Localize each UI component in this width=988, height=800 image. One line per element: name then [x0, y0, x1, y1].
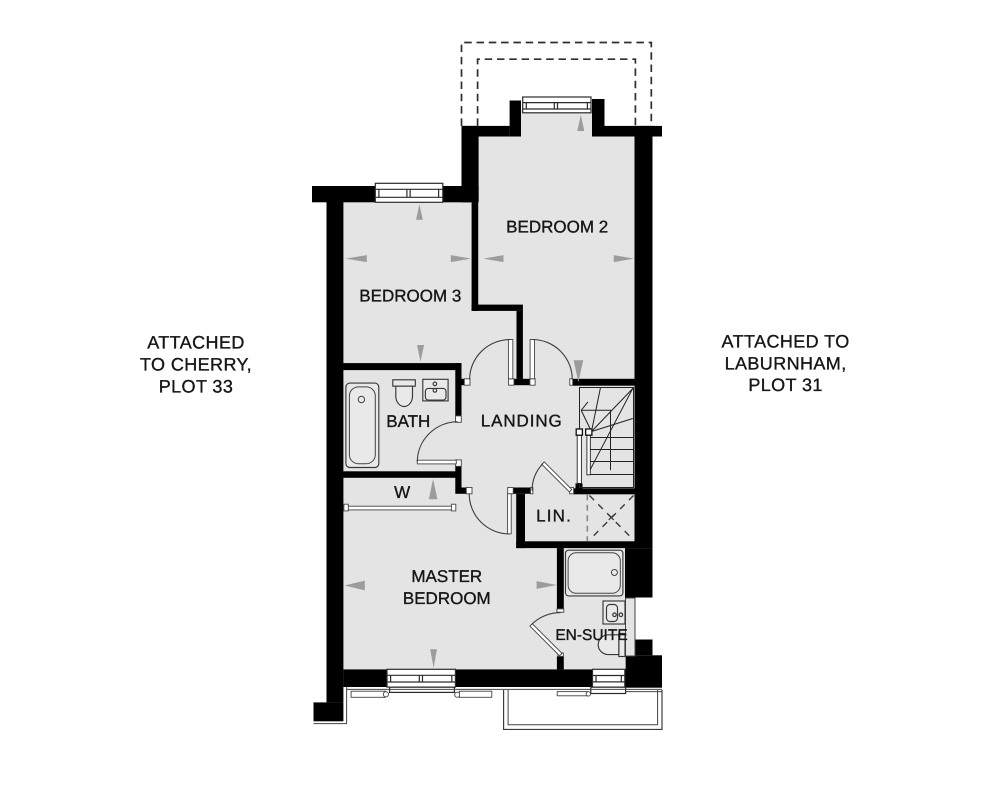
svg-text:ATTACHED TO: ATTACHED TO [722, 331, 850, 351]
svg-text:MASTER: MASTER [411, 567, 482, 586]
svg-text:PLOT 33: PLOT 33 [159, 376, 234, 396]
svg-text:PLOT 31: PLOT 31 [748, 375, 823, 395]
svg-text:EN-SUITE: EN-SUITE [555, 627, 627, 644]
svg-text:BEDROOM: BEDROOM [403, 589, 491, 608]
svg-text:BATH: BATH [386, 412, 430, 431]
svg-text:LANDING: LANDING [481, 411, 563, 430]
svg-text:BEDROOM 2: BEDROOM 2 [506, 217, 608, 236]
svg-text:W: W [394, 483, 410, 502]
svg-text:TO CHERRY,: TO CHERRY, [140, 355, 252, 375]
svg-text:LIN.: LIN. [536, 507, 572, 526]
svg-text:LABURNHAM,: LABURNHAM, [725, 353, 847, 373]
svg-text:BEDROOM 3: BEDROOM 3 [359, 286, 461, 305]
svg-text:ATTACHED: ATTACHED [147, 333, 245, 353]
